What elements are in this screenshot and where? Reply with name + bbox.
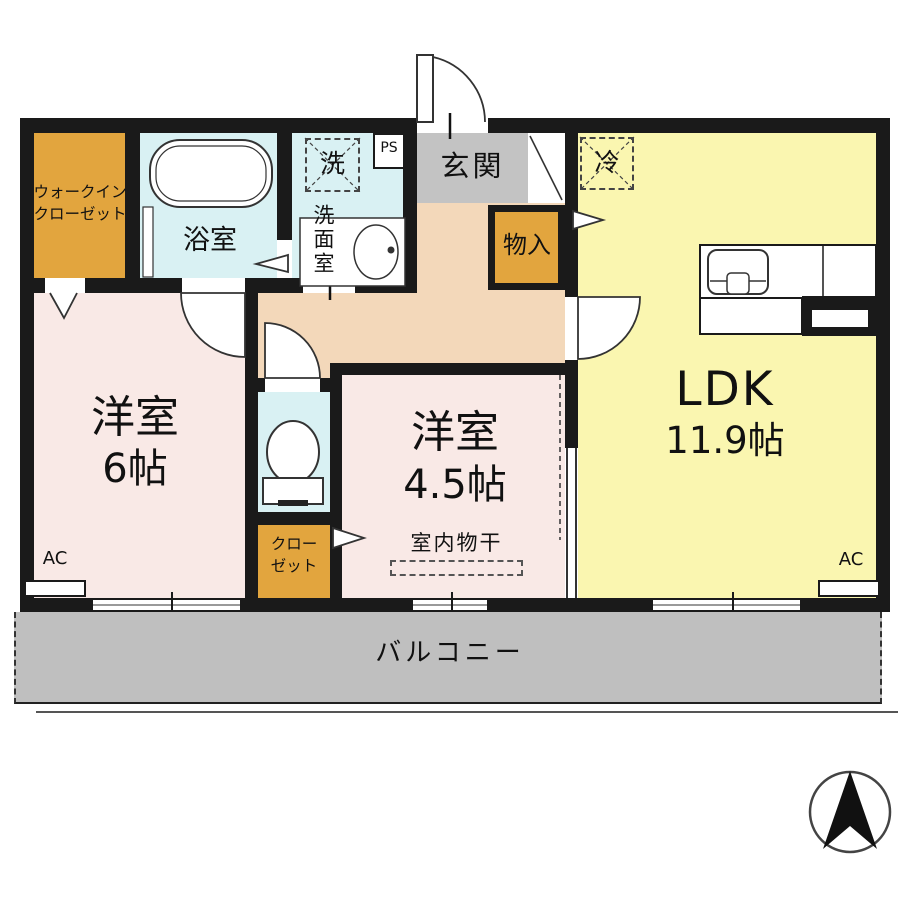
ldk-door-threshold [565,297,578,360]
balcony-ground-line [36,711,898,713]
drying-label: 室内物干 [388,532,525,554]
wall-wet-bottom-b [85,278,182,293]
room45-label: 洋室 [375,410,535,456]
ac-label-right: AC [826,551,876,570]
wic-label-line2: クローゼット [30,206,130,222]
closet-label-line1: クロー [260,536,328,552]
wall-bottom-2 [240,598,413,612]
wall-toilet-top-b [320,378,342,392]
bath-label: 浴室 [165,227,255,255]
ac-unit-left [24,580,86,597]
wall-top-left [20,118,417,133]
window-room6 [93,598,240,612]
wall-toilet-top-a [258,378,265,392]
room6-size-label: 6帖 [55,448,215,490]
wall-top-right [488,118,890,133]
toilet-door-threshold [265,378,320,392]
genkan-label: 玄関 [417,151,528,181]
wall-wet-bottom-d [355,278,417,293]
storage-label: 物入 [492,233,562,258]
wic-door-threshold [45,278,85,293]
room6-door-threshold [182,278,245,293]
wic-label-line1: ウォークイン [30,184,130,200]
wall-toilet-right [330,375,342,598]
ac-label-left: AC [30,550,80,569]
window-ldk [653,598,800,612]
wall-wet-bottom-a [20,278,45,293]
ldk-label: LDK [595,365,855,414]
ac-unit-right [818,580,880,597]
wall-bath-washroom [277,133,292,240]
toilet-floor [258,392,330,512]
wall-room6-right [245,278,258,598]
wall-washroom-genkan [403,133,417,293]
entrance-threshold [417,118,488,133]
bath-door-threshold [277,240,292,278]
wall-bottom-3 [487,598,653,612]
wall-room45-top [330,363,578,375]
wall-bottom-4 [800,598,890,612]
shoe-area-floor [528,133,565,203]
ldk-size-label: 11.9帖 [595,422,855,461]
room45-size-label: 4.5帖 [370,464,540,506]
floor-plan: ウォークイン クローゼット 浴室 洗 PS 洗面室 玄関 物入 冷 LDK 11… [0,0,900,900]
wall-toilet-bottom [258,512,330,525]
indoor-drying-rail [390,560,523,576]
wall-bottom-1 [20,598,93,612]
closet-label-line2: ゼット [260,558,328,574]
hallway-floor-main [258,293,565,363]
fridge-label: 冷 [580,150,634,176]
ps-label: PS [373,141,405,156]
north-compass-icon [810,771,890,852]
window-room45 [413,598,487,612]
bathroom-floor [140,133,277,278]
sliding-partition-pocket [565,448,578,598]
room6-label: 洋室 [55,395,215,441]
washroom-label: 洗面室 [306,190,334,290]
balcony-label: バルコニー [350,640,550,667]
wall-right [876,118,890,612]
laundry-label: 洗 [305,151,360,177]
